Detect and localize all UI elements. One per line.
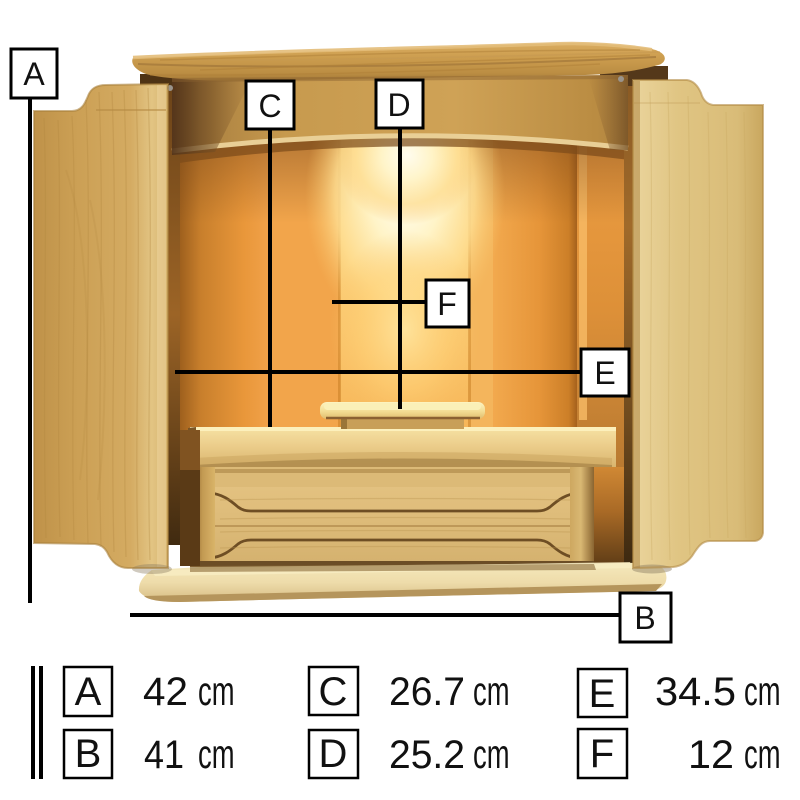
svg-text:A: A bbox=[23, 56, 45, 92]
svg-text:cm: cm bbox=[473, 731, 510, 777]
svg-text:34.5: 34.5 bbox=[655, 670, 736, 714]
svg-text:D: D bbox=[319, 732, 348, 776]
svg-text:42: 42 bbox=[143, 670, 188, 714]
svg-text:E: E bbox=[589, 672, 616, 716]
svg-text:41: 41 bbox=[144, 733, 184, 777]
svg-text:D: D bbox=[387, 87, 410, 123]
svg-text:F: F bbox=[437, 286, 457, 322]
svg-text:25.2: 25.2 bbox=[389, 733, 465, 777]
svg-text:C: C bbox=[319, 670, 348, 714]
svg-text:cm: cm bbox=[744, 731, 781, 777]
svg-text:B: B bbox=[634, 600, 655, 636]
svg-text:cm: cm bbox=[198, 731, 235, 777]
svg-text:cm: cm bbox=[198, 668, 235, 714]
svg-text:cm: cm bbox=[473, 668, 510, 714]
svg-text:cm: cm bbox=[744, 668, 781, 714]
svg-text:26.7: 26.7 bbox=[389, 670, 465, 714]
svg-text:C: C bbox=[258, 88, 281, 124]
svg-text:F: F bbox=[590, 732, 614, 776]
svg-text:E: E bbox=[594, 355, 615, 391]
svg-text:B: B bbox=[75, 732, 102, 776]
svg-text:12: 12 bbox=[688, 733, 734, 777]
svg-text:A: A bbox=[75, 670, 102, 714]
